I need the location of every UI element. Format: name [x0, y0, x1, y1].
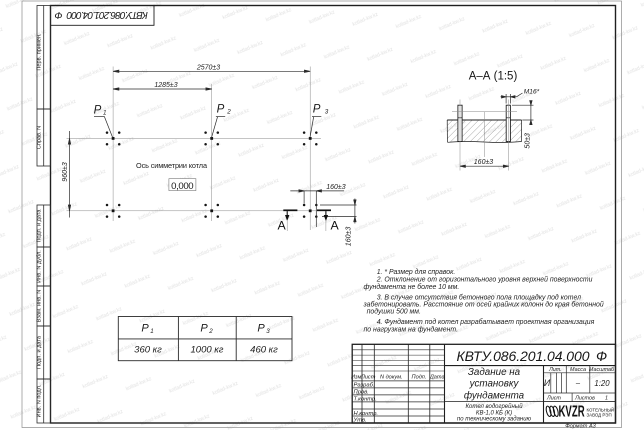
svg-text:фундамента не более 10 мм.: фундамента не более 10 мм. — [364, 283, 460, 291]
svg-text:1. * Размер для справок.: 1. * Размер для справок. — [377, 268, 456, 276]
svg-text:по нагрузкам на фундамент.: по нагрузкам на фундамент. — [364, 326, 459, 334]
svg-text:ЗАВОД РЭП: ЗАВОД РЭП — [587, 413, 612, 418]
svg-text:Масса: Масса — [570, 367, 586, 373]
svg-text:N докум.: N докум. — [380, 374, 403, 380]
svg-text:Ф: Ф — [55, 9, 63, 20]
svg-text:3. В случае отсутствия бетонно: 3. В случае отсутствия бетонного пола пл… — [377, 293, 581, 301]
svg-text:P: P — [217, 104, 225, 116]
svg-text:Подп. и дата: Подп. и дата — [37, 209, 43, 243]
svg-text:50±3: 50±3 — [524, 133, 531, 149]
svg-text:P: P — [257, 323, 265, 335]
svg-text:Инв. N дубл.: Инв. N дубл. — [37, 250, 43, 283]
svg-text:Котел водогрейный: Котел водогрейный — [465, 403, 523, 410]
svg-text:Дата: Дата — [429, 374, 445, 380]
svg-text:0,000: 0,000 — [171, 181, 194, 192]
svg-text:Формат А3: Формат А3 — [565, 423, 596, 429]
svg-text:Ф: Ф — [596, 348, 607, 364]
svg-text:Н.контр.: Н.контр. — [354, 411, 379, 417]
svg-text:160±3: 160±3 — [326, 184, 346, 191]
svg-text:по техническому заданию: по техническому заданию — [457, 417, 532, 423]
svg-text:М16*: М16* — [524, 89, 540, 96]
svg-text:P: P — [141, 323, 149, 335]
svg-text:360 кг: 360 кг — [134, 345, 162, 356]
svg-text:Подп. и дата: Подп. и дата — [37, 335, 43, 369]
svg-text:фундамента: фундамента — [464, 390, 525, 401]
svg-text:Масштаб: Масштаб — [589, 367, 615, 373]
svg-text:2: 2 — [208, 328, 213, 335]
svg-text:1000 кг: 1000 кг — [191, 345, 224, 356]
svg-text:А: А — [330, 218, 339, 232]
svg-text:1:20: 1:20 — [594, 379, 610, 388]
svg-text:Справ. N: Справ. N — [37, 126, 43, 149]
svg-text:460 кг: 460 кг — [250, 345, 278, 356]
svg-text:Разраб.: Разраб. — [354, 382, 375, 388]
svg-text:КВ-1,0 КБ (К): КВ-1,0 КБ (К) — [476, 410, 512, 416]
svg-text:3: 3 — [266, 328, 270, 335]
svg-text:КВТУ.086.201.04.000: КВТУ.086.201.04.000 — [66, 9, 148, 20]
svg-text:P: P — [200, 323, 208, 335]
svg-text:160±3: 160±3 — [474, 159, 494, 166]
svg-text:2570±3: 2570±3 — [196, 64, 220, 71]
svg-text:1: 1 — [103, 109, 107, 116]
svg-text:КВТУ.086.201.04.000: КВТУ.086.201.04.000 — [457, 348, 590, 364]
svg-text:Лист: Лист — [546, 395, 561, 401]
svg-text:Задание на: Задание на — [468, 367, 521, 378]
svg-text:3: 3 — [325, 109, 329, 116]
svg-text:2. Отклонение от горизонтально: 2. Отклонение от горизонтального уровня … — [376, 276, 593, 284]
svg-text:Пров.: Пров. — [354, 389, 369, 395]
svg-text:установку: установку — [469, 379, 520, 390]
svg-text:Лист: Лист — [360, 374, 376, 380]
svg-text:P: P — [94, 104, 102, 116]
svg-text:Взам. инв. N: Взам. инв. N — [37, 290, 43, 323]
svg-text:Инв. N подл.: Инв. N подл. — [37, 384, 43, 417]
svg-text:Перв. примен.: Перв. примен. — [37, 33, 43, 71]
svg-text:Подп.: Подп. — [412, 374, 427, 380]
svg-text:А–А (1:5): А–А (1:5) — [469, 71, 518, 83]
svg-text:960±3: 960±3 — [62, 162, 69, 182]
svg-text:подушки 500 мм.: подушки 500 мм. — [367, 307, 421, 315]
svg-text:1: 1 — [150, 328, 153, 335]
svg-text:KVZR: KVZR — [559, 402, 586, 420]
svg-text:Листов: Листов — [574, 395, 595, 401]
svg-text:И: И — [544, 378, 551, 388]
svg-text:Утв.: Утв. — [353, 418, 367, 424]
svg-text:P: P — [313, 104, 321, 116]
svg-text:1: 1 — [605, 395, 608, 401]
svg-text:А: А — [277, 218, 286, 232]
svg-text:забетонировать. Расстояние от: забетонировать. Расстояние от осей крайн… — [363, 300, 604, 308]
svg-text:Ось симметрии котла: Ось симметрии котла — [136, 161, 208, 170]
svg-text:Т.контр.: Т.контр. — [354, 396, 377, 402]
svg-text:4. Фундамент под котел разраба: 4. Фундамент под котел разрабатывает про… — [377, 318, 595, 326]
svg-text:1285±3: 1285±3 — [154, 82, 177, 89]
svg-text:Лит.: Лит. — [548, 367, 562, 373]
svg-text:2: 2 — [226, 109, 231, 116]
svg-text:160±3: 160±3 — [346, 227, 353, 247]
